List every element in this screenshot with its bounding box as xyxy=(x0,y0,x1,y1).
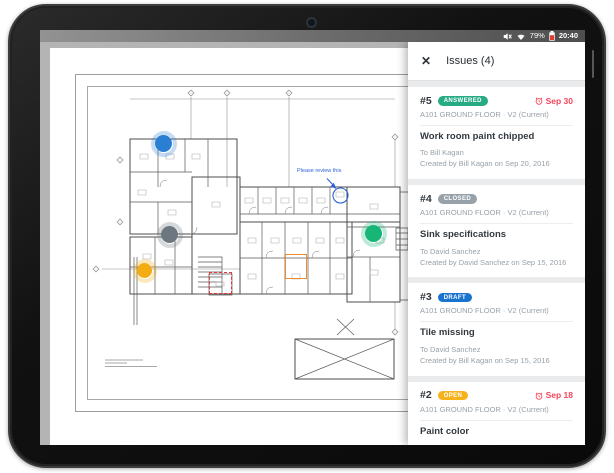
due-date: Sep 30 xyxy=(535,97,573,106)
exterior-walls xyxy=(130,139,400,379)
grid-bubbles xyxy=(93,90,398,335)
grid-lines xyxy=(102,97,395,332)
yellow-issue-marker[interactable] xyxy=(137,263,152,278)
issue-card[interactable]: #3 DRAFT A101 GROUND FLOOR · V2 (Current… xyxy=(408,283,585,375)
status-badge: CLOSED xyxy=(438,194,477,204)
alarm-clock-icon xyxy=(535,97,543,105)
issue-card[interactable]: #5 ANSWERED Sep 30 A101 GROUND FLOOR · V… xyxy=(408,87,585,179)
card-divider xyxy=(420,223,573,224)
plan-viewer[interactable]: Please review this ✕ Issues (4) xyxy=(40,42,585,445)
issue-title: Sink specifications xyxy=(420,230,573,240)
issues-panel-title: Issues (4) xyxy=(446,55,494,67)
red-dashed-box[interactable] xyxy=(209,272,232,294)
issue-number: #2 xyxy=(420,390,432,401)
card-divider xyxy=(420,125,573,126)
issue-title: Paint color xyxy=(420,427,573,437)
issue-number: #4 xyxy=(420,194,432,205)
gray-issue-marker[interactable] xyxy=(161,226,178,243)
issue-created: Created by David Sanchez on Sep 15, 2016 xyxy=(420,258,573,267)
tablet-screen: 79% 20:40 xyxy=(40,30,585,445)
issue-plan-label: A101 GROUND FLOOR · V2 (Current) xyxy=(420,208,573,217)
issue-plan-label: A101 GROUND FLOOR · V2 (Current) xyxy=(420,405,573,414)
due-date: Sep 18 xyxy=(535,391,573,400)
screenshot-stage: 79% 20:40 xyxy=(0,0,614,473)
orange-highlight-box[interactable] xyxy=(285,254,307,279)
issue-title: Tile missing xyxy=(420,328,573,338)
issue-plan-label: A101 GROUND FLOOR · V2 (Current) xyxy=(420,306,573,315)
review-annotation-text[interactable]: Please review this xyxy=(297,169,341,175)
card-divider xyxy=(420,420,573,421)
battery-percent: 79% xyxy=(530,32,545,40)
android-status-bar: 79% 20:40 xyxy=(40,30,585,42)
green-issue-marker[interactable] xyxy=(365,225,382,242)
issues-panel-header: ✕ Issues (4) xyxy=(408,42,585,81)
interior-walls xyxy=(130,139,408,379)
issue-number: #5 xyxy=(420,96,432,107)
alarm-clock-icon xyxy=(535,392,543,400)
issue-created: Created by Bill Kagan on Sep 15, 2016 xyxy=(420,356,573,365)
status-badge: DRAFT xyxy=(438,293,472,303)
issue-card[interactable]: #2 OPEN Sep 18 A101 GROUND FLOOR · V2 (C… xyxy=(408,382,585,445)
status-badge: ANSWERED xyxy=(438,96,488,106)
issues-panel: ✕ Issues (4) #5 ANSWERED Sep 30 xyxy=(408,42,585,445)
close-icon[interactable]: ✕ xyxy=(421,55,431,67)
status-badge: OPEN xyxy=(438,391,469,401)
issue-assignee: To Bill Kagan xyxy=(420,148,573,157)
issue-plan-label: A101 GROUND FLOOR · V2 (Current) xyxy=(420,110,573,119)
front-camera xyxy=(306,17,317,28)
battery-icon xyxy=(549,31,555,41)
issues-list: #5 ANSWERED Sep 30 A101 GROUND FLOOR · V… xyxy=(408,81,585,445)
wifi-icon xyxy=(516,32,526,41)
issue-created: Created by Bill Kagan on Sep 20, 2016 xyxy=(420,159,573,168)
issue-assignee: To David Sanchez xyxy=(420,247,573,256)
clock: 20:40 xyxy=(559,32,578,40)
mute-icon xyxy=(503,32,512,41)
issue-assignee: To David Sanchez xyxy=(420,345,573,354)
blue-issue-marker[interactable] xyxy=(155,135,172,152)
bezel-reflection xyxy=(592,50,594,78)
issue-title: Work room paint chipped xyxy=(420,132,573,142)
card-divider xyxy=(420,321,573,322)
issue-number: #3 xyxy=(420,292,432,303)
issue-card[interactable]: #4 CLOSED A101 GROUND FLOOR · V2 (Curren… xyxy=(408,185,585,277)
plan-title-block xyxy=(105,360,157,367)
tablet-bezel: 79% 20:40 xyxy=(8,4,606,468)
